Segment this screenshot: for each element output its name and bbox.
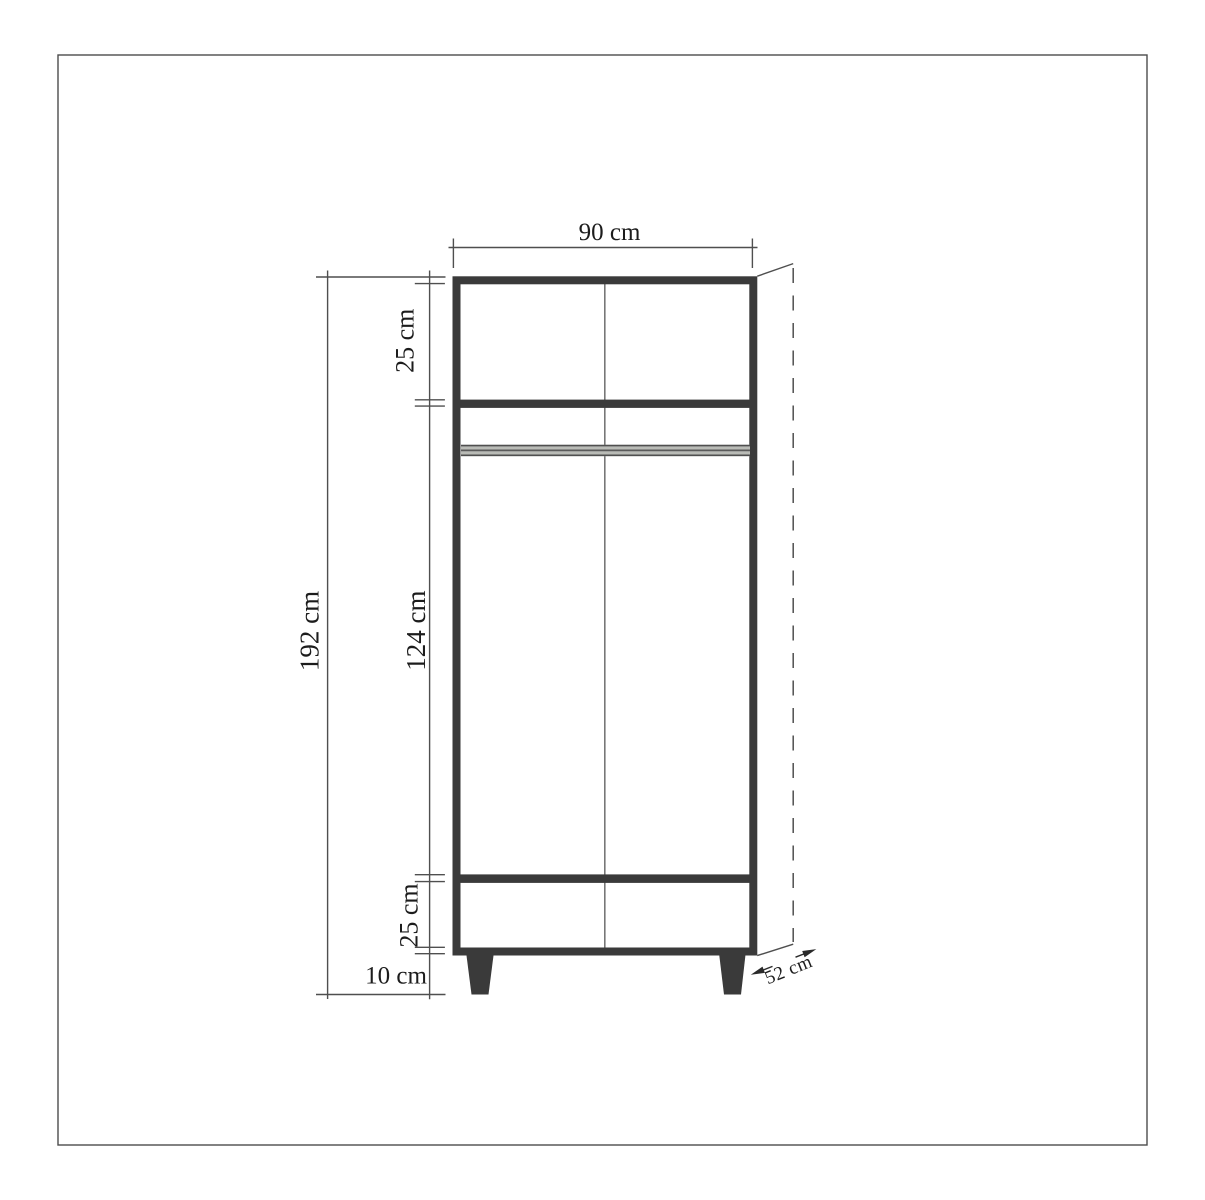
svg-text:25 cm: 25 cm — [394, 883, 423, 947]
svg-text:192 cm: 192 cm — [294, 591, 324, 671]
svg-text:124 cm: 124 cm — [401, 590, 431, 670]
svg-text:10 cm: 10 cm — [365, 963, 427, 990]
svg-text:90 cm: 90 cm — [579, 219, 641, 246]
svg-text:25 cm: 25 cm — [390, 309, 419, 373]
